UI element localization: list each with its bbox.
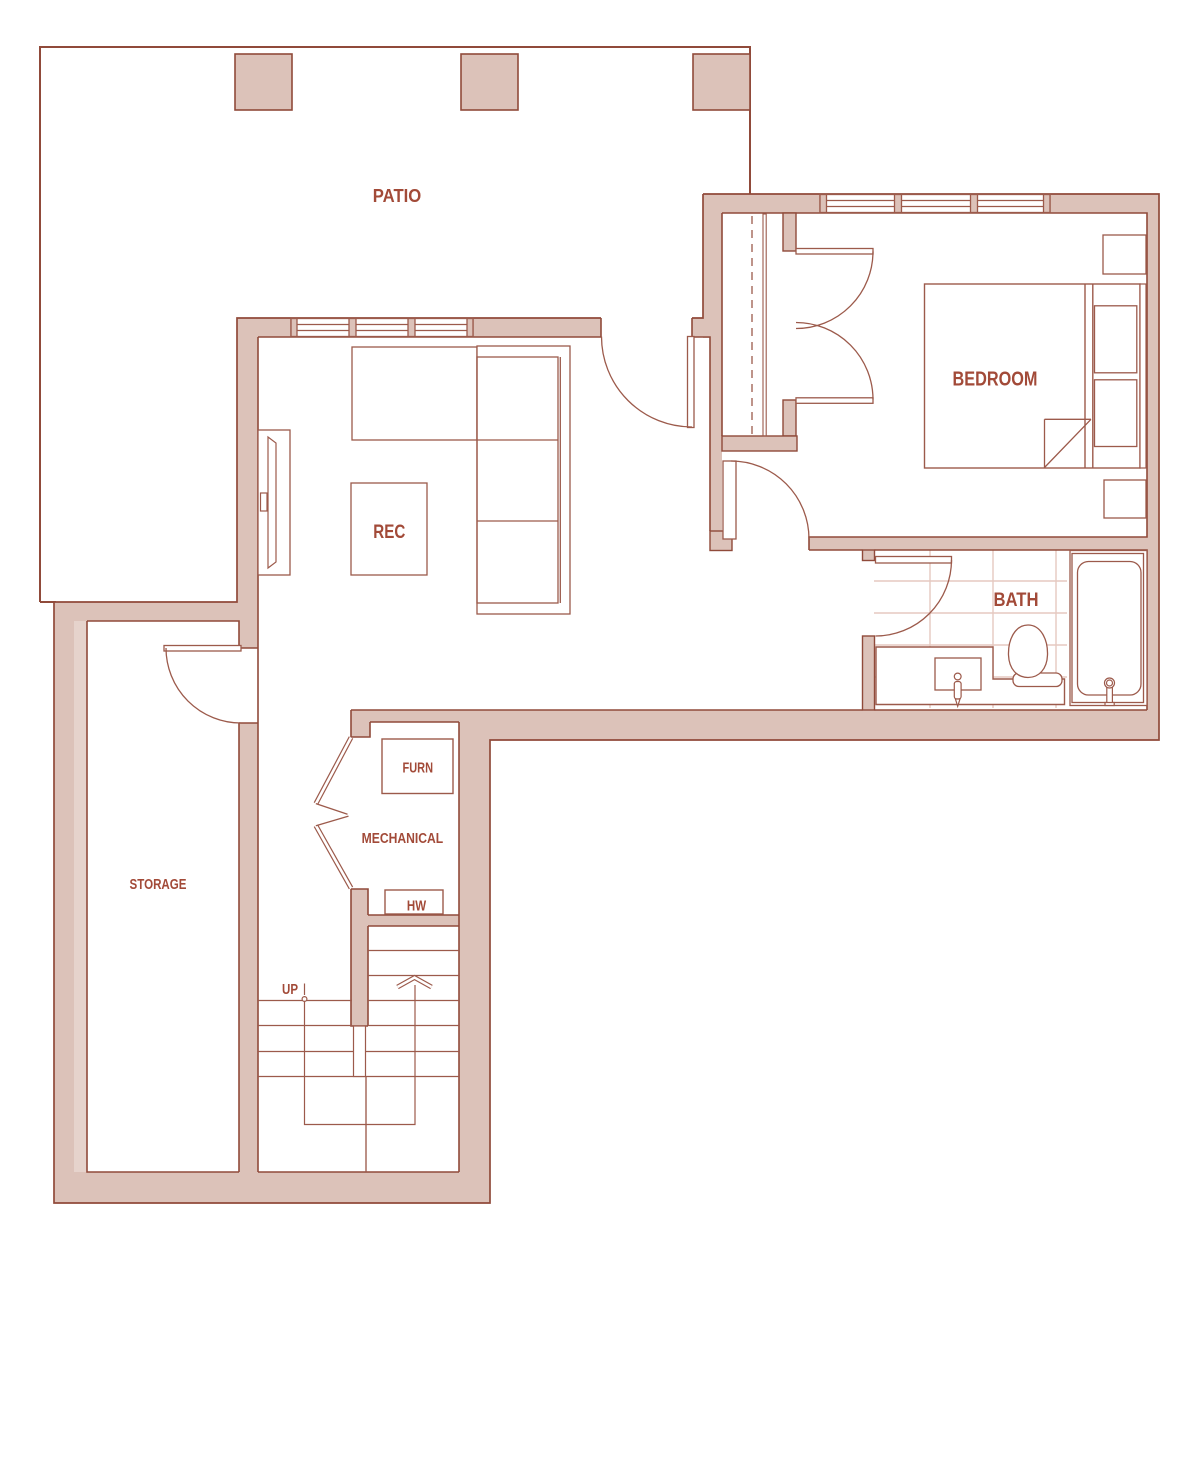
svg-text:REC: REC: [373, 522, 405, 543]
svg-text:HW: HW: [407, 897, 427, 914]
svg-text:UP: UP: [282, 981, 298, 998]
svg-text:BEDROOM: BEDROOM: [953, 369, 1038, 391]
svg-text:STORAGE: STORAGE: [130, 876, 187, 893]
svg-text:MECHANICAL: MECHANICAL: [362, 831, 444, 847]
svg-text:BATH: BATH: [994, 590, 1039, 611]
svg-text:PATIO: PATIO: [373, 185, 422, 206]
svg-text:FURN: FURN: [403, 759, 434, 776]
